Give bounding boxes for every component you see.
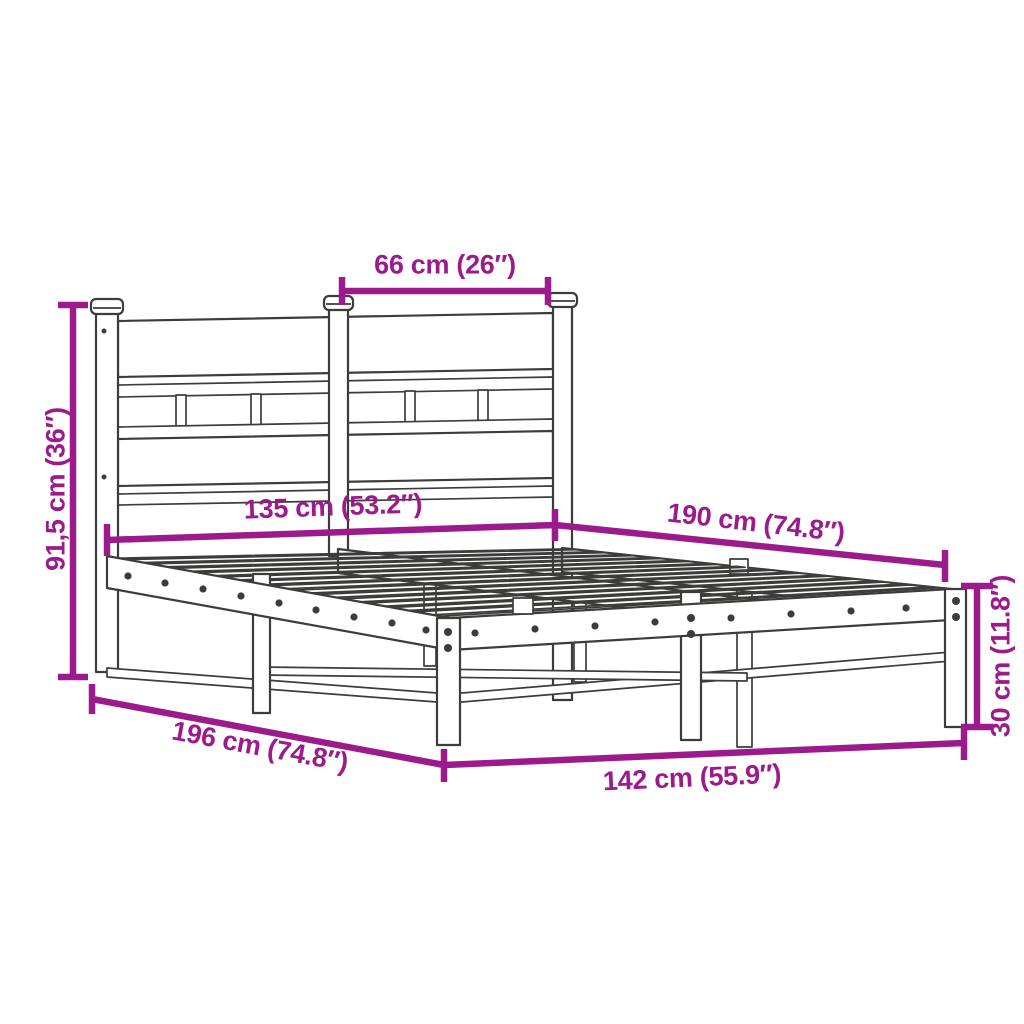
headboard-post-left bbox=[96, 312, 118, 672]
bed-dimension-diagram: 66 cm (26″) 135 cm (53.2″) 190 cm (74.8″… bbox=[0, 0, 1024, 1024]
headboard-spindle bbox=[478, 390, 488, 423]
headboard-spindle bbox=[251, 394, 261, 427]
dimension-label-headboard-height: 91,5 cm (36″) bbox=[41, 407, 72, 571]
dimension-line-headboard-panel-width bbox=[342, 277, 548, 305]
foot-front-leg bbox=[437, 618, 460, 745]
headboard-spindle bbox=[405, 391, 415, 424]
dimension-line-total-width bbox=[444, 727, 964, 765]
dimension-label-base-height: 30 cm (11.8″) bbox=[986, 575, 1017, 737]
center-stretcher bbox=[261, 667, 747, 681]
dimension-label-headboard-panel-width: 66 cm (26″) bbox=[374, 250, 516, 281]
bed-frame-drawing bbox=[0, 0, 1024, 1024]
foot-rear-leg bbox=[945, 589, 966, 727]
dimension-label-frame-width: 135 cm (53.2″) bbox=[243, 488, 422, 525]
stretcher-bars bbox=[107, 652, 951, 703]
post-cap bbox=[91, 299, 123, 314]
post-cap bbox=[324, 296, 353, 310]
post-cap bbox=[548, 293, 577, 307]
slat-holder-tab bbox=[513, 598, 533, 614]
headboard-spindle bbox=[176, 395, 186, 428]
